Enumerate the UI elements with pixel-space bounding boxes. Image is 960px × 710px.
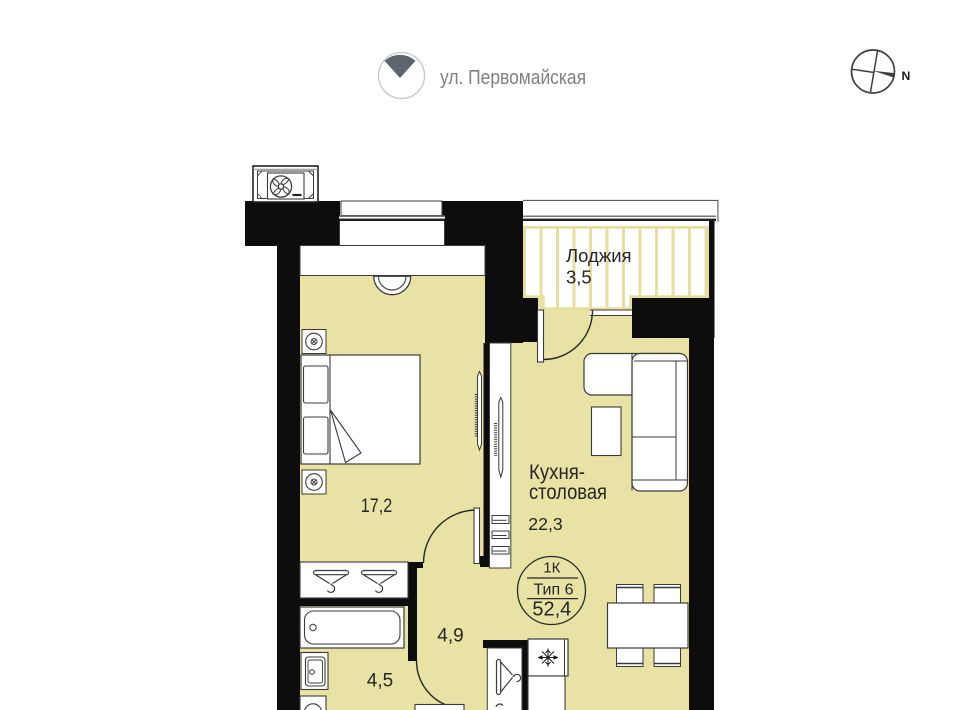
svg-text:Лоджия: Лоджия bbox=[566, 245, 632, 266]
svg-text:22,3: 22,3 bbox=[528, 514, 563, 534]
svg-text:1К: 1К bbox=[543, 560, 560, 577]
svg-text:N: N bbox=[902, 69, 911, 83]
svg-text:столовая: столовая bbox=[529, 481, 607, 504]
svg-text:3,5: 3,5 bbox=[566, 267, 592, 288]
svg-text:4,9: 4,9 bbox=[437, 626, 463, 647]
svg-text:Тип 6: Тип 6 bbox=[533, 582, 573, 599]
svg-text:17,2: 17,2 bbox=[361, 496, 393, 517]
svg-text:52,4: 52,4 bbox=[532, 599, 571, 621]
svg-text:4,5: 4,5 bbox=[367, 671, 393, 692]
svg-text:ул. Первомайская: ул. Первомайская bbox=[440, 66, 586, 89]
